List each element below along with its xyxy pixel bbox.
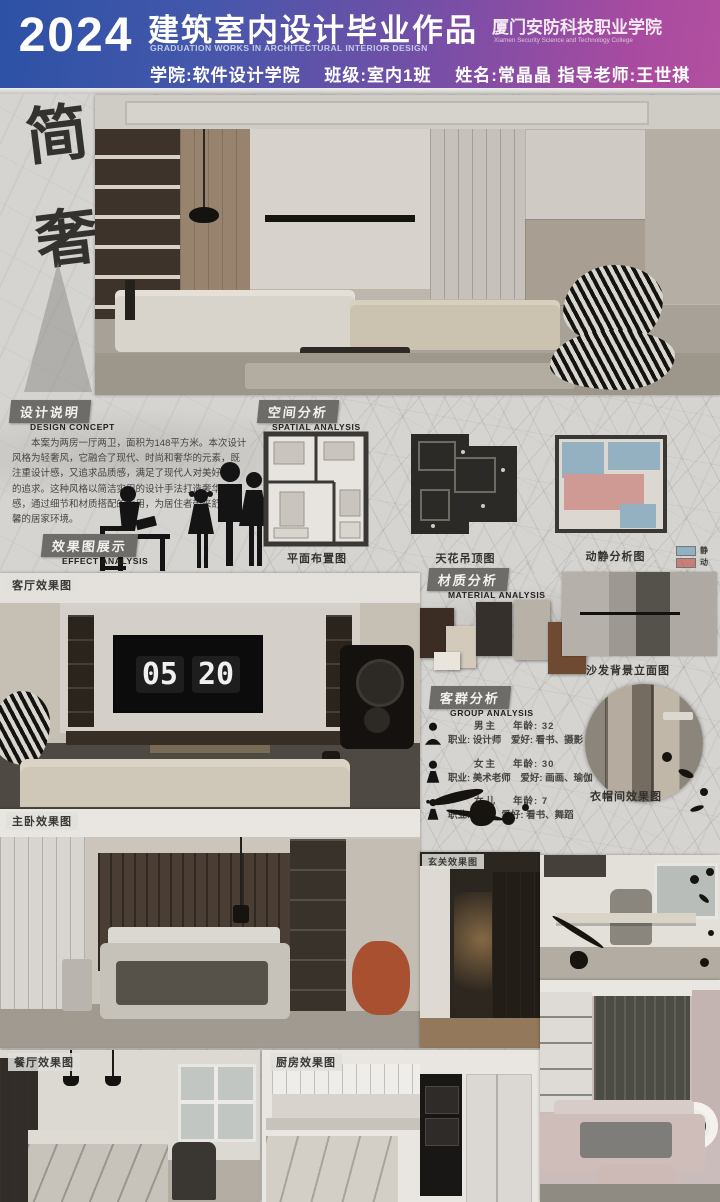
group-analysis-label-en: GROUP ANALYSIS [450, 708, 534, 718]
member-role: 男主 [474, 721, 497, 732]
wardrobe-caption: 衣帽间效果图 [590, 788, 662, 804]
poster-title-en: GRADUATION WORKS IN ARCHITECTURAL INTERI… [150, 43, 428, 53]
plan3-caption: 动静分析图 [568, 548, 663, 564]
kitchen-caption: 厨房效果图 [270, 1053, 342, 1071]
rug [245, 363, 575, 389]
console-light [150, 745, 270, 753]
dining-chairs [172, 1142, 216, 1200]
striped-lounge-chair-base [550, 330, 675, 390]
spatial-analysis-label: 空间分析 [257, 400, 339, 423]
family-silhouette [178, 460, 266, 572]
floor-plan-layout [262, 430, 370, 548]
legend-static: 静 [676, 545, 708, 556]
ceiling-plan [405, 428, 523, 540]
master-bedroom-caption: 主卧效果图 [6, 812, 78, 830]
pendant-cord-2 [112, 1050, 114, 1076]
elevation-shelf-line [580, 612, 680, 615]
ink-dot [690, 875, 699, 884]
island-marble [266, 1136, 398, 1202]
kitchen-render: 厨房效果图 [262, 1050, 540, 1202]
male-icon [424, 720, 442, 746]
wall-shelf [544, 855, 606, 877]
member-job: 职业: 设计师 [448, 735, 501, 746]
legend-dynamic-label: 动 [700, 557, 708, 568]
study-floor [540, 947, 720, 980]
master-bedroom-render: 主卧效果图 [0, 809, 420, 1048]
desk [556, 913, 696, 923]
entry-caption: 玄关效果图 [422, 854, 484, 869]
ink-blob [570, 951, 588, 969]
fridge-seam [496, 1074, 498, 1202]
poster: 2024 建筑室内设计毕业作品 GRADUATION WORKS IN ARCH… [0, 0, 720, 1202]
gray-triangle-decoration [24, 262, 92, 392]
pendant-lamp [233, 905, 249, 923]
member-hobby: 爱好: 画画、瑜伽 [520, 773, 592, 784]
calligraphy-jian: 简 [22, 100, 91, 169]
school-name-cn: 厦门安防科技职业学院 [492, 13, 662, 38]
plan2-caption: 天花吊顶图 [418, 550, 513, 566]
oven-lower [425, 1118, 459, 1146]
pendant-shade-1 [63, 1076, 79, 1086]
backsplash [272, 1094, 420, 1118]
legend-dynamic-swatch [676, 558, 696, 568]
floor-lamp [125, 280, 135, 320]
slat-feature-wall [594, 996, 690, 1102]
sofa-beige [350, 300, 560, 350]
year-label: 2024 [8, 8, 144, 63]
student-info-line: 学院:软件设计学院 班级:室内1班 姓名:常晶晶 指导老师:王世祺 [150, 61, 690, 86]
blanket [116, 961, 268, 1005]
island-top [28, 1130, 168, 1144]
floating-console [265, 215, 415, 222]
oven-upper [425, 1086, 459, 1114]
counter [266, 1118, 426, 1130]
legend-static-swatch [676, 546, 696, 556]
speaker-tweeter [364, 707, 390, 733]
living-room-render: 客厅效果图 05 20 [0, 573, 420, 809]
legend-static-label: 静 [700, 545, 708, 556]
pendant-lamp [189, 207, 219, 223]
nightstand [62, 959, 92, 1011]
wardrobe-frame-2 [651, 684, 654, 802]
living-room-caption: 客厅效果图 [6, 576, 78, 594]
legend-dynamic: 动 [676, 557, 708, 568]
striped-chair [0, 691, 50, 765]
wardrobe-shelf [663, 712, 693, 720]
pendant-shade-2 [105, 1076, 121, 1086]
dining-room-render: 餐厅效果图 [0, 1050, 260, 1202]
panel-wall [430, 129, 525, 299]
material-analysis-label: 材质分析 [427, 568, 509, 591]
female-icon [424, 758, 442, 784]
member-hobby: 爱好: 看书、摄影 [511, 735, 583, 746]
member-wife: 女主年龄: 30 职业: 美术老师 爱好: 画画、瑜伽 [424, 758, 594, 787]
pendant-cord [203, 129, 205, 211]
dining-caption: 餐厅效果图 [8, 1053, 80, 1071]
upper-cabinets [525, 129, 647, 221]
design-concept-label-en: DESIGN CONCEPT [30, 422, 115, 432]
tv-screen: 05 20 [113, 635, 263, 713]
ceiling-recess [125, 101, 649, 125]
gray-blanket [580, 1122, 672, 1158]
wardrobe-frame-1 [605, 684, 608, 802]
swatch-dark-stone [476, 602, 512, 656]
zoning-plan [552, 432, 670, 536]
swatch-white-fabric [434, 652, 460, 670]
entry-render: 玄关效果图 [420, 852, 540, 1048]
swatch-gray-stone [514, 600, 550, 660]
sofa-white [115, 290, 355, 352]
right-wall [645, 129, 720, 304]
hero-living-room-render [95, 95, 720, 395]
member-age: 年龄: 7 [513, 796, 548, 807]
member-husband: 男主年龄: 32 职业: 设计师 爱好: 看书、摄影 [424, 720, 594, 749]
group-analysis-label: 客群分析 [429, 686, 511, 709]
clock-hours: 05 [136, 656, 184, 693]
design-concept-label: 设计说明 [9, 400, 91, 423]
tv-feature-wall [250, 129, 430, 289]
header-separator [0, 88, 720, 94]
entry-wardrobe [492, 872, 540, 1018]
pendant-cord [240, 837, 242, 907]
effect-analysis-label: 效果图展示 [41, 534, 138, 557]
door-panel [420, 866, 450, 1018]
elevation-caption: 沙发背景立面图 [586, 662, 670, 678]
member-age: 年龄: 30 [513, 759, 554, 770]
clock-minutes: 20 [192, 656, 240, 693]
media-console [66, 731, 356, 745]
wardrobe-render-circle [585, 684, 703, 802]
display-niche-left [68, 615, 94, 727]
member-role: 女主 [474, 759, 497, 770]
second-bedroom-render [540, 980, 720, 1202]
study-render [540, 855, 720, 980]
orange-lounge-chair [352, 941, 410, 1015]
open-shelves [540, 992, 592, 1112]
floor [540, 1184, 720, 1202]
member-job: 职业: 美术老师 [448, 773, 511, 784]
header-banner: 2024 建筑室内设计毕业作品 GRADUATION WORKS IN ARCH… [0, 0, 720, 90]
display-shelving [290, 839, 346, 1011]
fridge [466, 1074, 532, 1202]
entry-floor [420, 1018, 540, 1048]
sofa-back [20, 759, 350, 807]
speaker-woofer [356, 659, 404, 707]
school-name-en: Xiamen Security Science and Technology C… [494, 37, 633, 44]
window-grid [178, 1064, 256, 1142]
member-age: 年龄: 32 [513, 721, 554, 732]
effect-analysis-label-en: EFFECT ANALYSIS [62, 556, 148, 566]
island-marble-front [28, 1144, 168, 1202]
plan1-caption: 平面布置图 [272, 550, 362, 566]
